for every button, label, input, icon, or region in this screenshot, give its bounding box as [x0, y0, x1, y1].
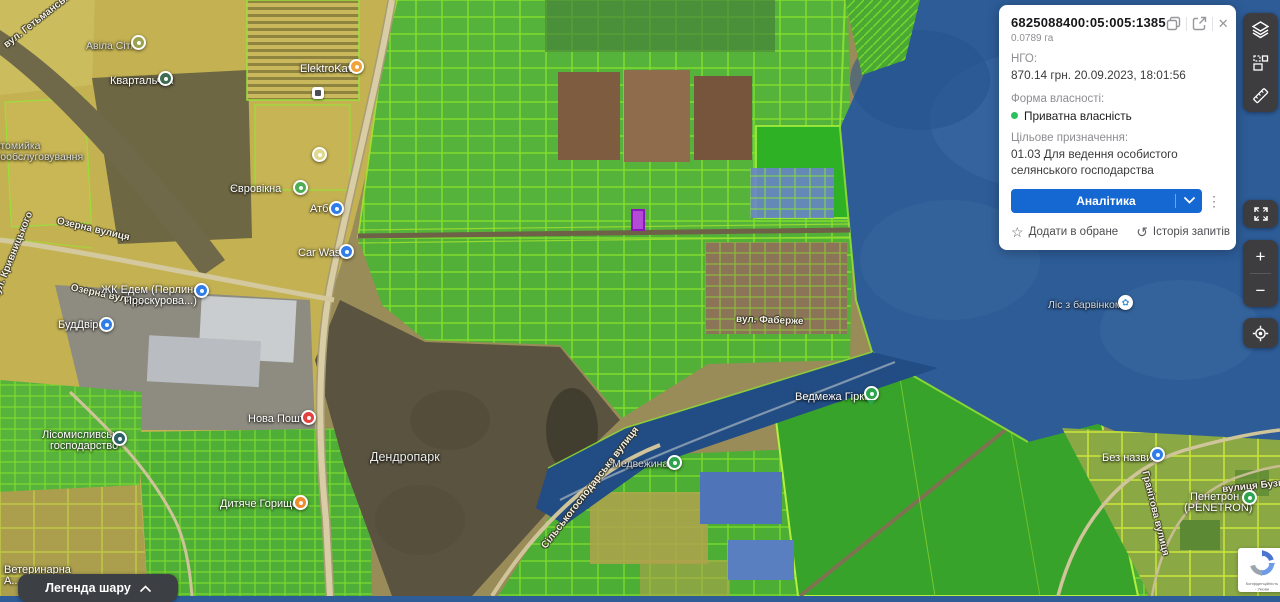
poi-marker-kvartalchyk[interactable] [158, 71, 173, 86]
cadastre-objects-button[interactable] [1243, 46, 1278, 79]
star-icon: ☆ [1011, 225, 1024, 239]
fullscreen-button[interactable] [1243, 200, 1278, 228]
analytics-button-label: Аналітика [1011, 194, 1175, 208]
fullscreen-icon [1253, 206, 1269, 222]
parcel-area: 0.0789 га [1011, 33, 1224, 44]
poi-marker-dytiache[interactable] [293, 495, 308, 510]
poi-label: самообслуговування [0, 151, 83, 163]
locate-button[interactable] [1243, 318, 1278, 348]
add-favorite-button[interactable]: ☆ Додати в обране [1011, 225, 1118, 239]
poi-marker-medvezhyna[interactable] [667, 455, 682, 470]
poi-marker-vedmezha-tip [867, 400, 875, 406]
chevron-down-icon[interactable] [1176, 197, 1202, 204]
poi-label: Авіла Сіті [86, 40, 133, 52]
ngo-value: 870.14 грн. 20.09.2023, 18:01:56 [1011, 68, 1224, 84]
poi-marker-vedmezha[interactable] [864, 386, 879, 401]
poi-label: Проскурова...) [124, 295, 197, 307]
poi-label: БудДвір [58, 319, 98, 331]
ownership-value: Приватна власність [1024, 109, 1132, 123]
locate-icon [1252, 325, 1269, 342]
poi-marker-nova-poshta[interactable] [301, 410, 316, 425]
zoom-out-button[interactable]: − [1243, 274, 1278, 307]
poi-label: (PENETRON) [1184, 502, 1252, 514]
map-tools-group [1243, 13, 1278, 112]
divider [1212, 17, 1213, 31]
parcel-number: 6825088400:05:005:1385 [1011, 15, 1166, 30]
poi-marker-bez-nazvy[interactable] [1150, 447, 1165, 462]
fullscreen-button-wrap [1243, 200, 1278, 228]
layer-legend-label: Легенда шару [45, 581, 131, 595]
open-in-new-icon[interactable] [1192, 16, 1207, 31]
zoom-in-button[interactable]: + [1243, 240, 1278, 273]
poi-marker-carwash[interactable] [339, 244, 354, 259]
recaptcha-badge[interactable]: Конфіденційність - Умови [1238, 548, 1280, 592]
poi-label: Без назви [1102, 452, 1152, 464]
poi-marker-atb[interactable] [329, 201, 344, 216]
poi-label: Атб [310, 203, 328, 215]
poi-label: Ведмежа Гірка [795, 391, 870, 403]
divider [1186, 17, 1187, 31]
history-label: Історія запитів [1153, 226, 1230, 238]
selected-parcel[interactable] [632, 210, 644, 230]
poi-marker-buddvir[interactable] [99, 317, 114, 332]
analytics-button[interactable]: Аналітика [1011, 189, 1202, 213]
cadastre-objects-icon [1252, 54, 1270, 72]
recaptcha-logo-icon [1249, 550, 1275, 576]
history-clock-icon: ↺ [1136, 225, 1148, 239]
bus-stop-icon[interactable] [312, 87, 324, 99]
purpose-label: Цільове призначення: [1011, 132, 1224, 144]
poi-label: Дитяче Горище [220, 498, 298, 510]
ownership-label: Форма власності: [1011, 93, 1224, 105]
kebab-menu-icon[interactable]: ⋮ [1204, 194, 1224, 208]
poi-marker-fuel[interactable] [312, 147, 327, 162]
poi-marker-zhk-edem[interactable] [194, 283, 209, 298]
close-icon[interactable]: ✕ [1218, 16, 1229, 31]
locate-button-wrap [1243, 318, 1278, 348]
measure-button[interactable] [1243, 79, 1278, 112]
poi-label: господарство [50, 440, 118, 452]
poi-label: Ліс з барвінком [1048, 299, 1122, 311]
ruler-icon [1251, 86, 1270, 105]
poi-marker-elektrokava[interactable] [349, 59, 364, 74]
chevron-up-icon [140, 585, 151, 592]
ngo-label: НГО: [1011, 53, 1224, 65]
poi-marker-lis-barvinkom[interactable] [1118, 295, 1133, 310]
poi-label: Дендропарк [370, 450, 440, 464]
street-label: вул. Фаберже [736, 314, 804, 327]
layers-button[interactable] [1243, 13, 1278, 46]
recaptcha-privacy-text: Конфіденційність [1246, 582, 1279, 587]
poi-marker-eurovikna[interactable] [293, 180, 308, 195]
purpose-value: 01.03 Для ведення особистого селянського… [1011, 147, 1224, 179]
copy-icon[interactable] [1166, 16, 1181, 31]
parcel-info-panel: 6825088400:05:005:1385 ✕ 0.0789 га НГО: … [999, 5, 1236, 250]
zoom-controls: + − [1243, 240, 1278, 307]
poi-marker-lisomyslyvske[interactable] [112, 431, 127, 446]
poi-marker-penetron[interactable] [1242, 490, 1257, 505]
poi-label: Медвежина [612, 458, 668, 470]
history-button[interactable]: ↺ Історія запитів [1136, 225, 1230, 239]
poi-marker-avila[interactable] [131, 35, 146, 50]
poi-label: Євровікна [230, 183, 281, 195]
add-favorite-label: Додати в обране [1029, 226, 1119, 238]
layers-icon [1251, 20, 1270, 39]
layer-legend-toggle[interactable]: Легенда шару [18, 574, 178, 602]
ownership-status-dot [1011, 112, 1018, 119]
recaptcha-terms-text: - Умови [1255, 587, 1269, 592]
